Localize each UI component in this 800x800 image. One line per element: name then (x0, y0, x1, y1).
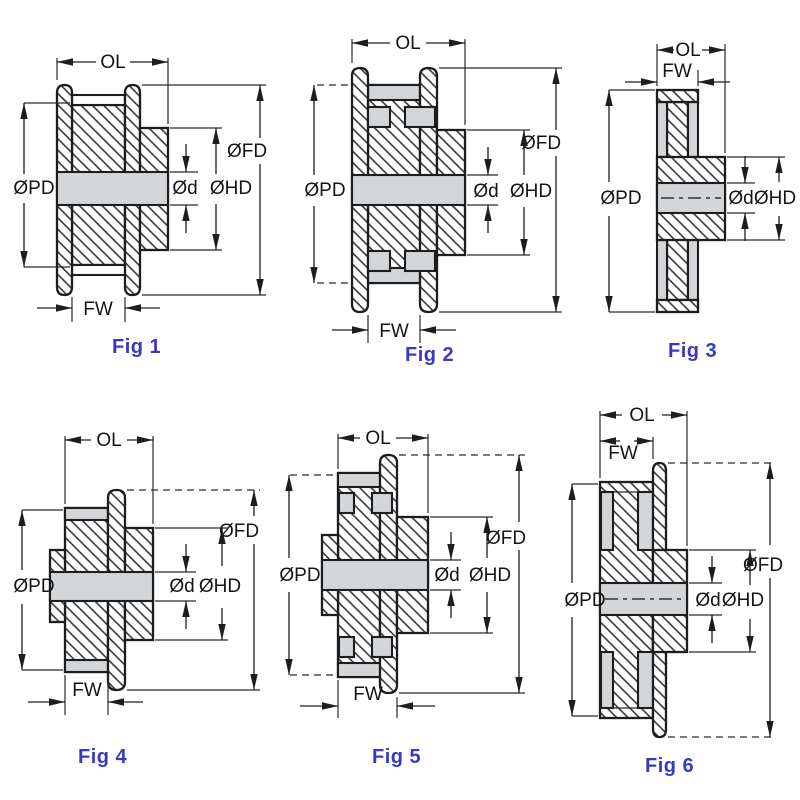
figure-1-drawing: OL ØPD ØFD ØHD Ød FW (10, 40, 280, 345)
belt-surface-bottom (65, 660, 108, 672)
dim-label-fw: FW (608, 443, 638, 464)
dim-label-ol: OL (395, 33, 420, 54)
figure-3-body (657, 90, 725, 312)
set-screw (339, 493, 354, 513)
dim-label-ol: OL (629, 405, 654, 426)
figure-1-panel: OL ØPD ØFD ØHD Ød FW (10, 40, 280, 345)
figure-2-body (352, 68, 465, 312)
set-screw (372, 493, 392, 513)
dim-label-fd: ØFD (486, 528, 526, 549)
figure-6-drawing: OL FW ØPD ØFD ØHD Ød (560, 395, 800, 757)
dim-label-ol: OL (96, 430, 121, 451)
dim-label-fw: FW (662, 61, 692, 82)
bore (57, 172, 168, 205)
figure-1-body (57, 85, 168, 295)
set-screw (368, 251, 390, 271)
figure-2-caption: Fig 2 (405, 344, 454, 367)
rim-band-top (657, 90, 698, 102)
figure-5-caption: Fig 5 (372, 746, 421, 769)
dim-label-d: Ød (434, 565, 459, 586)
figure-4-caption: Fig 4 (78, 746, 127, 769)
dim-label-pd: ØPD (13, 576, 54, 597)
dim-label-d: Ød (172, 178, 197, 199)
set-screw (372, 637, 392, 657)
dim-label-pd: ØPD (564, 590, 605, 611)
tooth-strip (601, 652, 613, 708)
dim-label-hd: ØHD (210, 178, 252, 199)
bore (50, 572, 153, 601)
figure-6-caption: Fig 6 (645, 755, 694, 778)
dim-label-pd: ØPD (304, 180, 345, 201)
dim-label-hd: ØHD (199, 576, 241, 597)
tooth-strip (688, 102, 698, 157)
dim-label-fw: FW (353, 684, 383, 705)
dim-label-fw: FW (83, 299, 113, 320)
dim-label-fd: ØFD (219, 521, 259, 542)
figure-2-panel: OL ØPD ØFD ØHD Ød FW (300, 25, 580, 343)
dim-label-hd: ØHD (754, 188, 796, 209)
figure-3-caption: Fig 3 (668, 340, 717, 363)
figure-2-drawing: OL ØPD ØFD ØHD Ød FW (300, 25, 580, 343)
figure-5-drawing: OL ØPD ØFD ØHD Ød FW (275, 420, 560, 736)
dim-label-d: Ød (169, 576, 194, 597)
figure-4-panel: OL ØPD ØFD ØHD Ød FW (10, 420, 275, 732)
tooth-strip (638, 492, 653, 550)
set-screw (368, 107, 390, 127)
tooth-strip (638, 652, 653, 708)
tooth-strip (688, 240, 698, 300)
tooth-strip (601, 492, 613, 550)
dim-label-fd: ØFD (521, 133, 561, 154)
figure-1-caption: Fig 1 (112, 336, 161, 359)
dim-label-ol: OL (675, 40, 700, 61)
dim-label-ol: OL (365, 428, 390, 449)
bore (352, 175, 465, 205)
figure-6-body (600, 463, 687, 737)
dim-label-fw: FW (72, 680, 102, 701)
dim-label-hd: ØHD (469, 565, 511, 586)
tooth-strip (657, 102, 667, 157)
dim-label-ol: OL (100, 52, 125, 73)
dim-label-pd: ØPD (13, 178, 54, 199)
figure-4-drawing: OL ØPD ØFD ØHD Ød FW (10, 420, 275, 732)
dim-label-fw: FW (379, 321, 409, 342)
dim-label-fd: ØFD (743, 555, 783, 576)
belt-surface-top (338, 473, 380, 487)
dim-label-hd: ØHD (510, 181, 552, 202)
tooth-strip (657, 240, 667, 300)
belt-surface-top (368, 85, 420, 100)
figure-5-panel: OL ØPD ØFD ØHD Ød FW (275, 420, 560, 736)
figure-3-drawing: OL FW ØPD ØHD Ød (595, 30, 800, 332)
bore (322, 560, 428, 590)
figure-3-panel: OL FW ØPD ØHD Ød (595, 30, 800, 332)
dim-label-fd: ØFD (227, 141, 267, 162)
figure-6-panel: OL FW ØPD ØFD ØHD Ød (560, 395, 800, 757)
dim-label-pd: ØPD (600, 188, 641, 209)
dim-label-d: Ød (728, 188, 753, 209)
dim-label-d: Ød (695, 590, 720, 611)
set-screw (339, 637, 354, 657)
diagram-sheet: OL ØPD ØFD ØHD Ød FW Fig 1 (0, 0, 800, 800)
dim-label-pd: ØPD (279, 565, 320, 586)
set-screw (405, 251, 435, 271)
rim-band-bottom (657, 300, 698, 312)
dim-label-hd: ØHD (722, 590, 764, 611)
belt-surface-bottom (338, 663, 380, 677)
figure-4-body (50, 490, 153, 690)
set-screw (405, 107, 435, 127)
figure-5-body (322, 455, 428, 693)
belt-surface-top (65, 508, 108, 520)
dim-label-d: Ød (473, 181, 498, 202)
